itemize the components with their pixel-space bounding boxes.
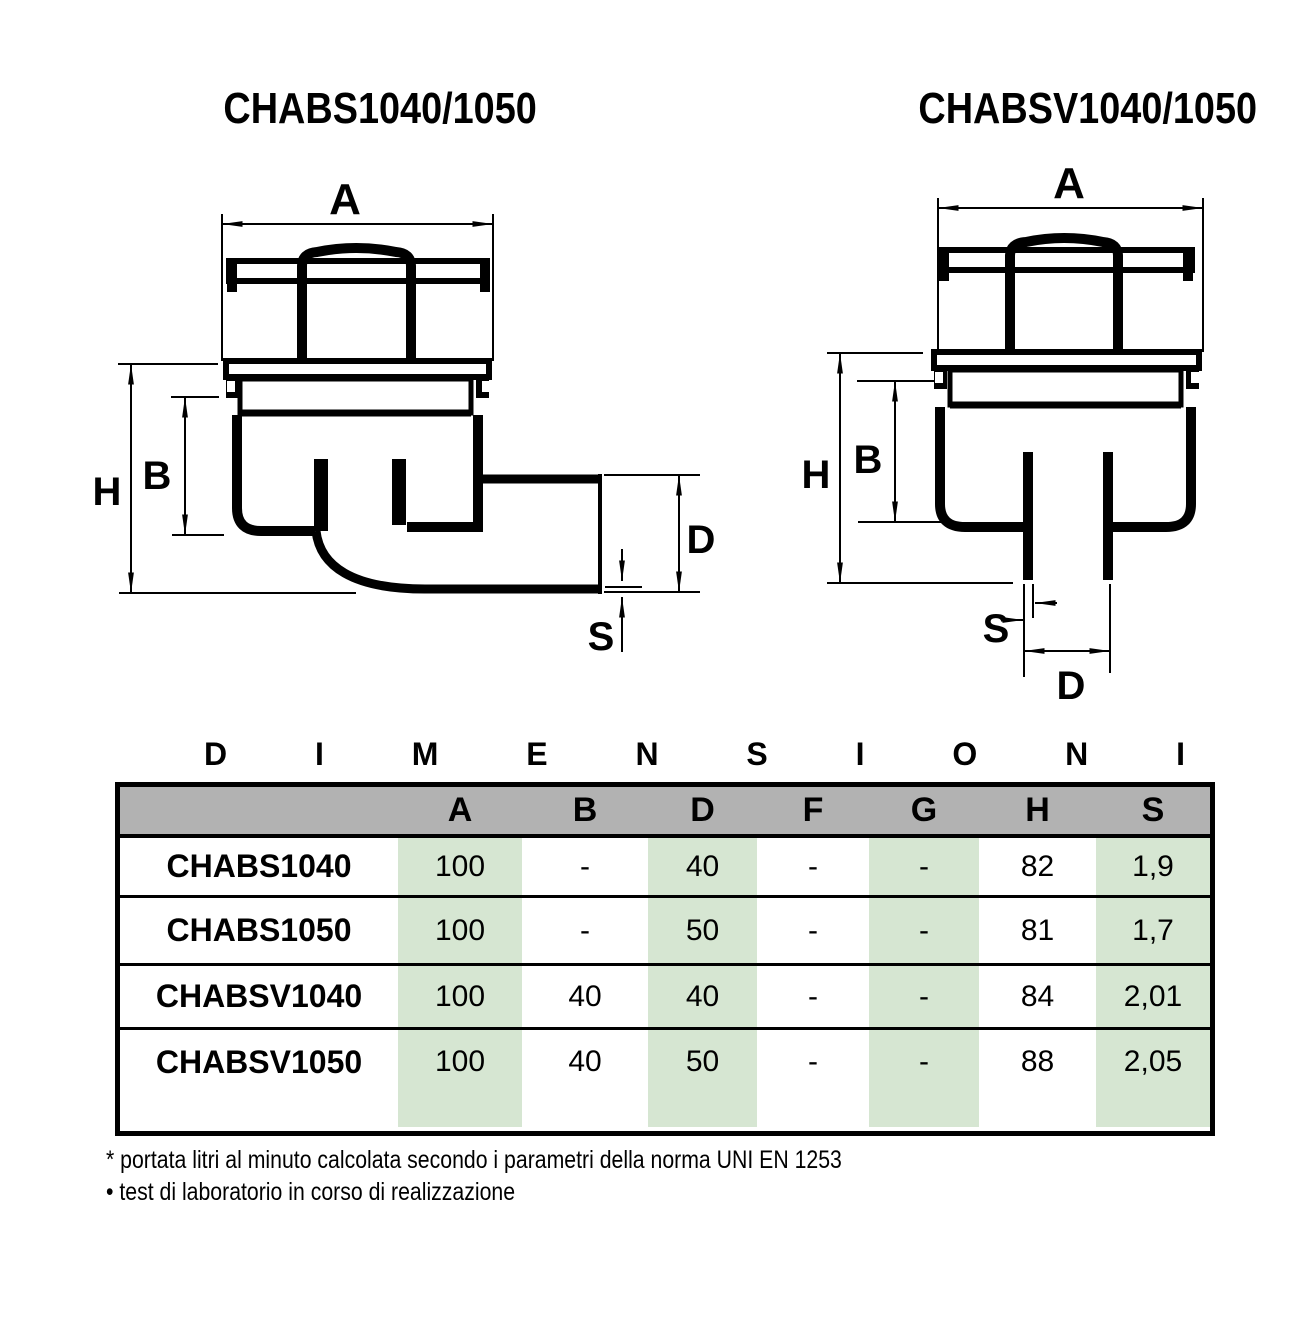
footnote-lab-test: • test di laboratorio in corso di realiz… [106, 1178, 515, 1207]
flange [226, 361, 489, 377]
dimensions-table: A B D F G H S CHABS1040 100 - 40 - - 82 … [115, 782, 1215, 1136]
table-cell: 100 [398, 898, 522, 963]
footnote-flow-rate: * portata litri al minuto calcolata seco… [106, 1146, 842, 1175]
table-cell: - [869, 898, 979, 963]
dim-label-d: D [687, 518, 716, 562]
trap-body [237, 415, 315, 531]
right-part-drawing [934, 238, 1199, 580]
heading-letter: E [526, 736, 547, 773]
table-row: CHABSV1040 100 40 40 - - 84 2,01 [120, 966, 1210, 1030]
column-header-a: A [398, 787, 522, 834]
dimensions-heading: D I M E N S I O N I [204, 736, 1185, 773]
dim-label-h: H [802, 453, 831, 497]
dim-label-h: H [93, 470, 122, 514]
dim-label-a: A [1053, 159, 1085, 208]
table-cell: - [757, 966, 869, 1027]
dim-label-a: A [329, 175, 361, 224]
table-cell: 1,7 [1096, 898, 1210, 963]
left-diagram: A H B D S [93, 175, 716, 659]
rim-band [240, 379, 471, 413]
table-cell: 2,05 [1096, 1030, 1210, 1094]
table-cell: 50 [648, 898, 757, 963]
trap-body-left [940, 407, 1023, 527]
trap-curve [316, 531, 600, 589]
left-part-drawing [226, 248, 600, 594]
table-cell: 2,01 [1096, 966, 1210, 1027]
heading-letter: N [635, 736, 658, 773]
table-cell: - [869, 966, 979, 1027]
table-body: CHABS1040 100 - 40 - - 82 1,9 CHABS1050 … [120, 838, 1210, 1127]
heading-letter: M [412, 736, 439, 773]
table-cell: 88 [979, 1030, 1096, 1094]
heading-letter: I [1176, 736, 1185, 773]
table-row: CHABS1040 100 - 40 - - 82 1,9 [120, 838, 1210, 898]
table-row: CHABS1050 100 - 50 - - 81 1,7 [120, 898, 1210, 966]
table-cell: - [522, 838, 648, 895]
row-name: CHABSV1050 [120, 1030, 398, 1094]
table-cell: - [869, 838, 979, 895]
heading-letter: I [315, 736, 324, 773]
table-cell: 100 [398, 966, 522, 1027]
table-cell: 40 [522, 966, 648, 1027]
table-cell: - [757, 898, 869, 963]
heading-letter: O [952, 736, 977, 773]
dim-label-d: D [1057, 664, 1086, 708]
row-name: CHABSV1040 [120, 966, 398, 1027]
table-cell: 40 [522, 1030, 648, 1094]
table-cell: - [757, 1030, 869, 1094]
grate-wings [941, 250, 1192, 270]
heading-letter: I [856, 736, 865, 773]
dim-label-s: S [588, 615, 615, 659]
table-cell: 50 [648, 1030, 757, 1094]
rim-band [950, 370, 1181, 405]
row-name: CHABS1040 [120, 838, 398, 895]
table-corner-cell [120, 787, 398, 834]
column-header-f: F [757, 787, 869, 834]
table-cell: 1,9 [1096, 838, 1210, 895]
trap-body-right [1113, 407, 1191, 527]
right-diagram: A H B S D [802, 159, 1203, 708]
table-cell: 40 [648, 838, 757, 895]
table-cell: 40 [648, 966, 757, 1027]
column-header-b: B [522, 787, 648, 834]
column-header-g: G [869, 787, 979, 834]
dim-label-b: B [143, 454, 172, 498]
table-cell: 84 [979, 966, 1096, 1027]
table-header-row: A B D F G H S [120, 787, 1210, 838]
dim-label-b: B [854, 438, 883, 482]
table-cell: 82 [979, 838, 1096, 895]
table-cell: - [869, 1030, 979, 1094]
column-header-s: S [1096, 787, 1210, 834]
flange [934, 352, 1199, 368]
dim-label-s: S [983, 607, 1010, 651]
column-header-d: D [648, 787, 757, 834]
grate-dome [302, 248, 411, 361]
row-name: CHABS1050 [120, 898, 398, 963]
grate-dome [1010, 238, 1118, 352]
table-cell: - [757, 838, 869, 895]
heading-letter: D [204, 736, 227, 773]
column-header-h: H [979, 787, 1096, 834]
technical-drawings: A H B D S [0, 0, 1300, 730]
table-cell: - [522, 898, 648, 963]
grate-wings [229, 261, 487, 281]
datasheet-page: CHABS1040/1050 CHABSV1040/1050 [0, 0, 1300, 1335]
heading-letter: N [1065, 736, 1088, 773]
table-cell: 100 [398, 838, 522, 895]
heading-letter: S [746, 736, 767, 773]
table-cell: 100 [398, 1030, 522, 1094]
table-row: CHABSV1050 100 40 50 - - 88 2,05 [120, 1030, 1210, 1094]
table-cell: 81 [979, 898, 1096, 963]
